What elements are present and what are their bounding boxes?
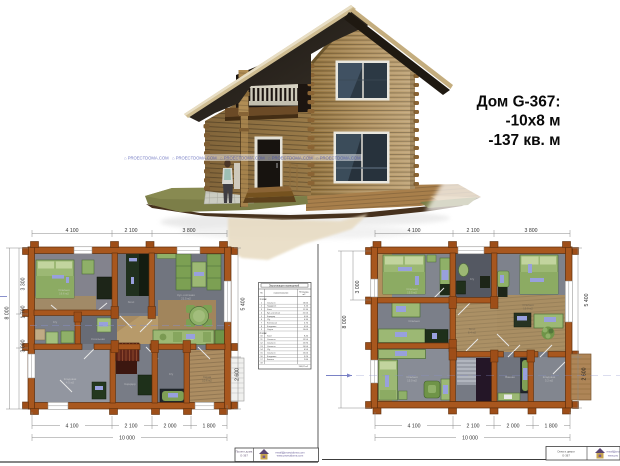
svg-text:Кух.-гостиная: Кух.-гостиная	[267, 312, 280, 314]
svg-text:136,87 м2: 136,87 м2	[298, 366, 308, 368]
svg-text:2 600: 2 600	[582, 367, 588, 380]
svg-text:4 100: 4 100	[66, 424, 79, 430]
svg-text:5 400: 5 400	[584, 293, 590, 306]
svg-text:10.60: 10.60	[303, 329, 309, 331]
svg-text:8.4 м2: 8.4 м2	[468, 331, 477, 335]
svg-text:Холл: Холл	[267, 336, 273, 338]
svg-text:3 000: 3 000	[355, 280, 361, 293]
svg-text:15.0 м2: 15.0 м2	[407, 379, 417, 383]
svg-text:email@pro: email@pro	[606, 450, 620, 454]
svg-text:3 000: 3 000	[21, 339, 27, 352]
svg-text:G-367: G-367	[562, 454, 570, 458]
svg-text:16.60: 16.60	[303, 302, 309, 304]
svg-text:5 400: 5 400	[241, 297, 247, 310]
svg-text:10.50: 10.50	[303, 346, 309, 348]
svg-text:⌂ PROECTDOMA.COM: ⌂ PROECTDOMA.COM	[124, 156, 169, 161]
svg-text:2 000: 2 000	[164, 424, 177, 430]
svg-text:Спальня: Спальня	[267, 353, 275, 355]
svg-text:G-367: G-367	[240, 454, 248, 458]
svg-text:Гардероб: Гардероб	[267, 306, 277, 308]
svg-text:15.90: 15.90	[303, 342, 309, 344]
svg-text:15.5 м2: 15.5 м2	[407, 291, 417, 295]
svg-text:10 000: 10 000	[462, 436, 478, 442]
svg-text:Балкон: Балкон	[267, 359, 274, 361]
svg-text:Спальня: Спальня	[267, 346, 275, 348]
svg-text:15.9 м2: 15.9 м2	[523, 307, 533, 311]
svg-text:www.proectdoma.com: www.proectdoma.com	[277, 454, 304, 458]
svg-text:2 100: 2 100	[125, 424, 138, 430]
svg-text:2 000: 2 000	[507, 424, 520, 430]
svg-text:2 100: 2 100	[467, 424, 480, 430]
svg-text:1 этаж: 1 этаж	[260, 299, 267, 301]
svg-text:8 000: 8 000	[5, 306, 11, 319]
svg-text:2 этаж: 2 этаж	[260, 333, 267, 335]
svg-text:Котельная: Котельная	[267, 323, 277, 325]
svg-text:Спальня: Спальня	[267, 302, 275, 304]
svg-text:21.5 м2: 21.5 м2	[181, 297, 191, 301]
svg-text:Спальня: Спальня	[267, 342, 275, 344]
svg-text:Кладовая: Кладовая	[267, 326, 276, 328]
svg-text:С/у: С/у	[470, 277, 475, 281]
svg-text:2 600: 2 600	[235, 368, 241, 381]
svg-text:⌂ PROECTDOMA.COM: ⌂ PROECTDOMA.COM	[220, 156, 265, 161]
svg-text:Сауна: Сауна	[267, 329, 274, 331]
svg-text:Коридор: Коридор	[124, 382, 135, 386]
svg-text:4.5 м2: 4.5 м2	[66, 381, 75, 385]
svg-text:2 100: 2 100	[125, 228, 138, 234]
svg-text:16.6 м2: 16.6 м2	[59, 292, 69, 296]
svg-text:⌂ PROECTDOMA.COM: ⌂ PROECTDOMA.COM	[316, 156, 361, 161]
svg-text:Спальня: Спальня	[267, 339, 275, 341]
svg-text:наименование: наименование	[274, 293, 290, 295]
svg-text:Котельная: Котельная	[91, 337, 105, 341]
svg-text:3.2 м2: 3.2 м2	[545, 379, 554, 383]
svg-text:Дом G-367:: Дом G-367:	[477, 94, 561, 111]
svg-text:4 100: 4 100	[408, 228, 421, 234]
svg-text:Холл: Холл	[267, 309, 273, 311]
svg-text:-10x8 м: -10x8 м	[505, 112, 560, 129]
svg-text:8 000: 8 000	[342, 315, 348, 328]
svg-text:10.6 м2: 10.6 м2	[202, 379, 212, 383]
svg-text:⌂ PROECTDOMA.COM: ⌂ PROECTDOMA.COM	[268, 156, 313, 161]
svg-text:Кладовая: Кладовая	[267, 356, 276, 358]
svg-text:1 800: 1 800	[203, 424, 216, 430]
svg-text:Спальня: Спальня	[408, 319, 420, 323]
svg-text:3 800: 3 800	[183, 228, 196, 234]
svg-text:4 100: 4 100	[408, 424, 421, 430]
svg-text:www.pro: www.pro	[608, 454, 619, 458]
svg-text:Экспликация помещений: Экспликация помещений	[269, 284, 300, 288]
svg-text:3 300: 3 300	[21, 277, 27, 290]
svg-text:10 000: 10 000	[119, 436, 135, 442]
svg-text:С/у: С/у	[169, 372, 174, 376]
svg-text:2 100: 2 100	[467, 228, 480, 234]
svg-text:⌂ PROECTDOMA.COM: ⌂ PROECTDOMA.COM	[172, 156, 217, 161]
svg-text:С/у: С/у	[53, 320, 58, 324]
svg-text:3 800: 3 800	[525, 228, 538, 234]
svg-text:11.30: 11.30	[303, 309, 309, 311]
svg-text:Коридор: Коридор	[267, 316, 276, 318]
svg-text:Холл: Холл	[128, 300, 135, 304]
svg-text:21.50: 21.50	[303, 312, 309, 314]
svg-text:1 800: 1 800	[545, 424, 558, 430]
svg-text:1 700: 1 700	[21, 305, 27, 318]
svg-text:15.00: 15.00	[303, 353, 309, 355]
svg-text:4 100: 4 100	[66, 228, 79, 234]
svg-text:15.50: 15.50	[303, 339, 309, 341]
svg-text:-137 кв. м: -137 кв. м	[488, 132, 560, 149]
